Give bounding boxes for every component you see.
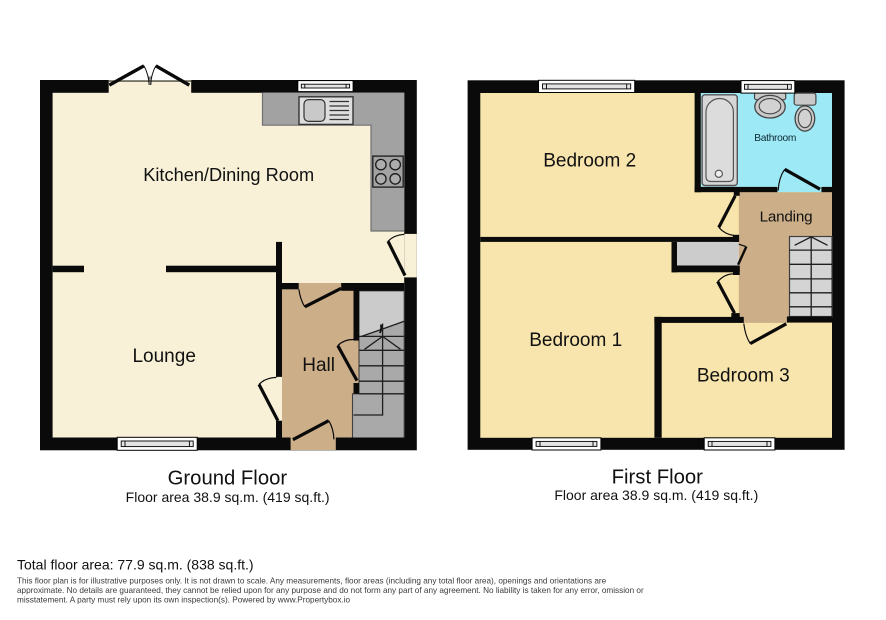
svg-text:Floor area 38.9 sq.m. (419 sq.: Floor area 38.9 sq.m. (419 sq.ft.) — [126, 489, 330, 505]
svg-text:This floor plan is for illustr: This floor plan is for illustrative purp… — [17, 576, 607, 585]
svg-text:Ground Floor: Ground Floor — [168, 467, 288, 489]
svg-text:Floor area 38.9 sq.m. (419 sq.: Floor area 38.9 sq.m. (419 sq.ft.) — [554, 487, 758, 503]
svg-text:Hall: Hall — [302, 355, 335, 376]
svg-text:Total floor area: 77.9 sq.m. (: Total floor area: 77.9 sq.m. (838 sq.ft.… — [17, 557, 254, 573]
svg-text:Lounge: Lounge — [132, 346, 195, 367]
svg-text:Kitchen/Dining Room: Kitchen/Dining Room — [143, 165, 314, 185]
svg-text:misstatement. A party must rel: misstatement. A party must rely upon its… — [17, 596, 351, 605]
svg-text:First Floor: First Floor — [612, 467, 704, 489]
svg-text:Bedroom 3: Bedroom 3 — [697, 366, 790, 387]
svg-text:Bedroom 1: Bedroom 1 — [529, 330, 622, 351]
svg-text:Landing: Landing — [760, 208, 813, 225]
svg-text:Bedroom 2: Bedroom 2 — [543, 151, 636, 172]
svg-text:Bathroom: Bathroom — [754, 133, 796, 144]
svg-text:approximate. No details are gu: approximate. No details are guaranteed, … — [17, 586, 644, 595]
